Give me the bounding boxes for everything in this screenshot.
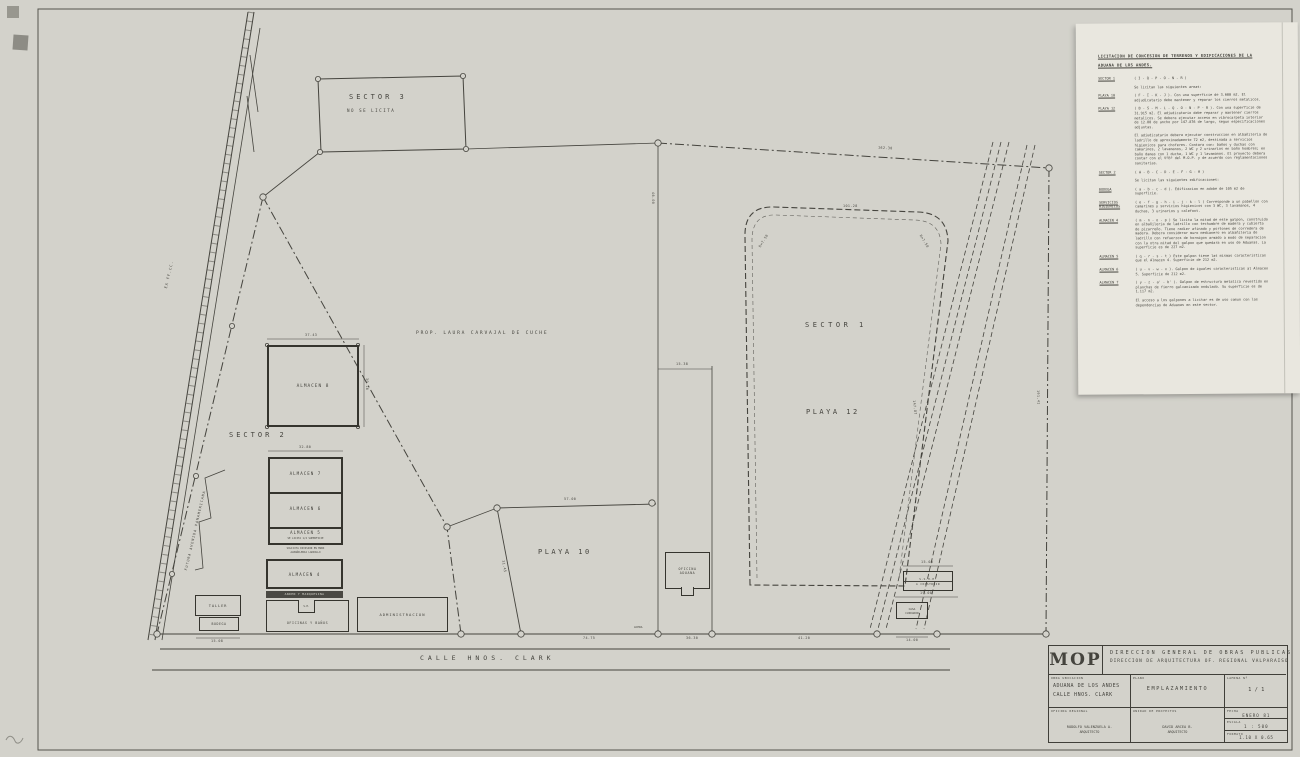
dim-south-3: 41.20: [798, 636, 810, 640]
field-escala-value: 1 : 500: [1225, 724, 1288, 729]
spec-item-body: ( B - S - M - L - Q - O - N - P - R ). C…: [1134, 106, 1268, 130]
building-taller: TALLER: [195, 595, 241, 616]
field-fecha-label: FECHA: [1227, 709, 1239, 713]
dim-east-edge: 191.41: [1036, 390, 1041, 405]
spec-item-label: ALMACEN 6: [1099, 267, 1135, 276]
author1-role: ARQUITECTO: [1049, 730, 1130, 734]
dim-almacen8-top: 37.43: [305, 333, 317, 337]
dim-north-edge: 162.30: [878, 146, 893, 151]
spec-item-body: ( I - Q - P - O - N - R ): [1134, 75, 1268, 81]
spec-item-label: BODEGA: [1099, 187, 1135, 196]
building-label-almacen-7: ALMACEN 7: [270, 471, 341, 476]
building-oficina-aduana-tab: [681, 587, 694, 596]
spec-item: PLAYA 10( F - I - K - J ). Con una super…: [1098, 93, 1270, 103]
spec-item: El adjudicatario debera ejecutar constru…: [1098, 133, 1270, 166]
org-line-1: DIRECCION GENERAL DE OBRAS PUBLICAS: [1110, 650, 1286, 656]
spec-item: Se licitan las siguientes edificaciones:: [1099, 178, 1271, 184]
field-unidad-proyectos: UNIDAD DE PROYECTOS DAVID ARCEA B. ARQUI…: [1131, 708, 1225, 742]
spec-item-body: ( e - f - g - h - i - j - k - l ) Corres…: [1135, 199, 1269, 214]
field-formato: FORMATO 1.10 X 0.65: [1225, 731, 1288, 743]
label-playa-10: PLAYA 10: [538, 548, 592, 556]
field-obra: OBRA UBICACION ADUANA DE LOS ANDES CALLE…: [1049, 675, 1131, 708]
mop-logo: MOP: [1049, 650, 1101, 670]
building-almacen-stack: ALMACEN 7 ALMACEN 6 ALMACEN 5 SE LICITA …: [268, 457, 343, 545]
label-sector-1: SECTOR 1: [805, 321, 867, 329]
label-sector-3: SECTOR 3: [349, 93, 407, 101]
building-label-line2: ADUANA: [680, 571, 696, 575]
spec-item-body: ( q - r - s - t ) Este galpon tiene las …: [1135, 253, 1269, 263]
dim-south-2: 36.30: [686, 636, 698, 640]
spec-item: Se licitan las siguientes areas:: [1098, 84, 1270, 90]
spec-item-label: SECTOR 2: [1099, 170, 1135, 175]
registration-mark: [12, 34, 28, 50]
field-escala-label: ESCALA: [1227, 720, 1241, 724]
spec-item: El acceso a los galpones a licitar es de…: [1100, 297, 1272, 307]
dim-stack-top: 32.80: [299, 445, 311, 449]
building-casa-cuidador: CASA CUIDADOR: [896, 602, 928, 619]
label-street: CALLE HNOS. CLARK: [420, 654, 555, 662]
spec-item-label: ALMACEN 5: [1099, 254, 1135, 263]
building-label-line2: CUIDADOR: [905, 611, 918, 615]
spec-item-body: ( a - b - c - d ). Edificacion en adobe …: [1135, 186, 1269, 196]
building-sshh-a-construir: S.S.H.H. A CONSTRUIR: [903, 571, 953, 591]
spec-item: PLAYA 12( B - S - M - L - Q - O - N - P …: [1098, 106, 1270, 130]
field-obra-label: OBRA UBICACION: [1051, 676, 1083, 680]
field-obra-line1: ADUANA DE LOS ANDES: [1053, 683, 1130, 689]
spec-item: SECTOR 1( I - Q - P - O - N - R ): [1098, 75, 1270, 81]
field-formato-value: 1.10 X 0.65: [1225, 735, 1288, 740]
spec-item-body: ( y - z - a' - b' ). Galpon de estructur…: [1136, 280, 1270, 295]
field-oficina-label: OFICINA REGIONAL: [1051, 709, 1088, 713]
spec-item: ALMACEN 6( u - v - w - x ). Galpon de ig…: [1099, 266, 1271, 276]
org-line-2: DIRECCION DE ARQUITECTURA OF. REGIONAL V…: [1110, 659, 1286, 664]
spec-item: ALMACEN 7( y - z - a' - b' ). Galpon de …: [1100, 280, 1272, 295]
spec-item: ALMACEN 4( m - n - o - p ) Se licita la …: [1099, 217, 1271, 250]
building-label: S.H.: [303, 605, 309, 608]
spec-item: SERVICIOS HIGIENICOS( e - f - g - h - i …: [1099, 199, 1271, 214]
dim-divider: 46.00: [651, 192, 655, 204]
note-division-2: ALBAÑILERIA LADRILLO: [268, 551, 343, 554]
spec-item: SECTOR 2( A - B - C - D - E - F - G - H …: [1099, 169, 1271, 175]
spec-item-body: Se licitan las siguientes edificaciones:: [1135, 178, 1269, 184]
specification-sheet: LICITACION DE CONCESION DE TERRENOS Y ED…: [1076, 22, 1300, 395]
field-plano-value: EMPLAZAMIENTO: [1131, 686, 1224, 692]
field-obra-line2: CALLE HNOS. CLARK: [1053, 692, 1130, 698]
building-bodega: BODEGA: [199, 617, 239, 631]
building-label-almacen-5: ALMACEN 5: [270, 530, 341, 535]
spec-item-label: [1100, 298, 1136, 307]
field-oficina-regional: OFICINA REGIONAL RODOLFO VALENZUELA A. A…: [1049, 708, 1131, 742]
title-block-logo-cell: MOP: [1049, 646, 1103, 675]
dim-almacen8-right: 30.16: [365, 378, 369, 390]
building-label: BODEGA: [211, 622, 226, 626]
spec-item-body: ( A - B - C - D - E - F - G - H ): [1135, 169, 1269, 175]
author1-name: RODOLFO VALENZUELA A.: [1049, 725, 1130, 729]
spec-item-body: El adjudicatario debera ejecutar constru…: [1134, 133, 1268, 166]
field-plano-label: PLANO: [1133, 676, 1145, 680]
spec-item-label: SERVICIOS HIGIENICOS: [1099, 200, 1135, 214]
spec-item-body: ( m - n - o - p ) Se licita la mitad de …: [1135, 217, 1269, 250]
building-label: ALMACEN 8: [297, 384, 330, 389]
label-acera: ACERA: [634, 625, 642, 629]
dim-sshh-bottom: 19.00: [920, 591, 932, 595]
label-prop-owner: PROP. LAURA CARVAJAL DE CUCHE: [416, 331, 548, 336]
strip-anden-marquesina: ANDEN Y MARQUESINA: [266, 591, 343, 598]
spec-item-body: ( F - I - K - J ). Con una superficie de…: [1134, 93, 1268, 103]
title-block: MOP DIRECCION GENERAL DE OBRAS PUBLICAS …: [1048, 645, 1288, 743]
spec-item: ALMACEN 5( q - r - s - t ) Este galpon t…: [1099, 253, 1271, 263]
dim-bodega-bottom: 15.08: [211, 639, 223, 643]
building-label-line2: A CONSTRUIR: [916, 582, 940, 586]
building-label: TALLER: [209, 603, 228, 608]
spec-item-label: ALMACEN 7: [1100, 281, 1136, 295]
dim-oficina-strip: 15.38: [676, 362, 688, 366]
dim-casa-bottom: 14.00: [906, 638, 918, 642]
building-administracion: ADMINISTRACION: [357, 597, 448, 632]
label-sector-3-note: NO SE LICITA: [347, 108, 395, 113]
spec-item-label: PLAYA 12: [1098, 107, 1134, 130]
dim-playa10-top: 57.00: [564, 497, 576, 501]
building-label-almacen-6: ALMACEN 6: [270, 506, 341, 511]
spec-item-body: ( u - v - w - x ). Galpon de iguales car…: [1135, 266, 1269, 276]
building-label: ALMACEN 4: [289, 572, 321, 577]
building-sh-notch: S.H.: [298, 600, 315, 613]
registration-mark: [7, 6, 19, 18]
label-sector-2: SECTOR 2: [229, 431, 287, 439]
title-block-org-cell: DIRECCION GENERAL DE OBRAS PUBLICAS DIRE…: [1103, 646, 1286, 675]
paper-fold-line: [1282, 22, 1286, 393]
spec-item-body: El acceso a los galpones a licitar es de…: [1136, 297, 1270, 307]
building-label: OFICINAS Y BAÑOS: [287, 621, 328, 625]
spec-item: BODEGA( a - b - c - d ). Edificacion en …: [1099, 186, 1271, 196]
field-plano: PLANO EMPLAZAMIENTO: [1131, 675, 1225, 708]
spec-item-label: [1099, 178, 1135, 183]
spec-item-label: ALMACEN 4: [1099, 218, 1135, 250]
field-lamina-value: 1 / 1: [1225, 687, 1288, 693]
field-fecha-value: ENERO 81: [1225, 713, 1288, 718]
building-almacen-4: ALMACEN 4: [266, 559, 343, 589]
spec-item-label: PLAYA 10: [1098, 94, 1134, 103]
site-plan-sheet: SECTOR 3 NO SE LICITA PROP. LAURA CARVAJ…: [0, 0, 1300, 757]
author2-role: ARQUITECTO: [1131, 730, 1224, 734]
field-lamina-label: LAMINA Nº: [1227, 676, 1248, 680]
building-almacen-8: ALMACEN 8: [267, 345, 359, 427]
note-division-1: SOLICITA DIVISION EN MURO: [268, 547, 343, 550]
field-fecha: FECHA ENERO 81: [1225, 708, 1288, 719]
spec-item-label: SECTOR 1: [1098, 76, 1134, 81]
dim-sshh-top: 15.00: [921, 560, 933, 564]
building-oficina-aduana: OFICINA ADUANA: [665, 552, 710, 589]
spec-item-label: [1098, 134, 1134, 166]
building-label: ADMINISTRACION: [379, 612, 425, 617]
spec-item-body: Se licitan las siguientes areas:: [1134, 84, 1268, 90]
spec-item-label: [1098, 85, 1134, 90]
dim-south-1: 74.75: [583, 636, 595, 640]
field-formato-label: FORMATO: [1227, 732, 1243, 736]
label-playa-12: PLAYA 12: [806, 408, 860, 416]
dim-playa12-top: 101.28: [843, 204, 858, 208]
building-note-almacen-5: SE LICITA 1/2 SUPERFICIE: [270, 537, 341, 540]
spec-title-line1: LICITACION DE CONCESION DE TERRENOS Y ED…: [1098, 52, 1270, 59]
field-escala: ESCALA 1 : 500: [1225, 719, 1288, 730]
author2-name: DAVID ARCEA B.: [1131, 725, 1224, 729]
field-lamina: LAMINA Nº 1 / 1: [1225, 675, 1288, 708]
field-unidad-label: UNIDAD DE PROYECTOS: [1133, 709, 1177, 713]
